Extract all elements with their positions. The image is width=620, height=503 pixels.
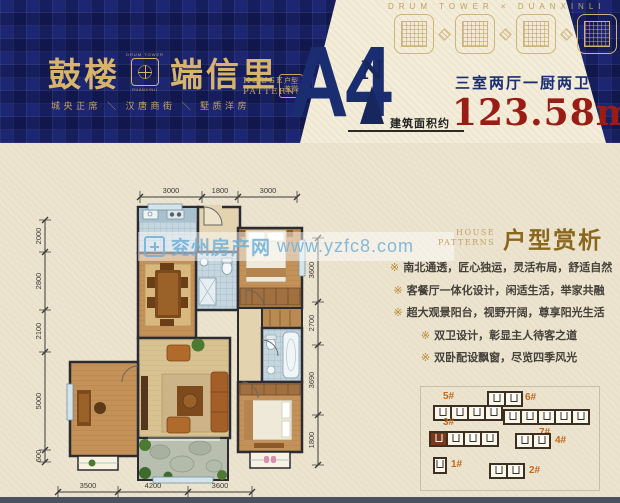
building-label: 6# [525,392,536,403]
compass-needle-icon [360,86,384,124]
watermark: 兖州房产网 www.yzfc8.com [138,232,454,261]
window-pattern-icon [455,14,495,54]
diamond-icon [499,28,512,41]
brand-logo-top-text: DRUM TOWER [126,52,164,57]
window-pattern-icon [577,14,617,54]
svg-text:2100: 2100 [34,323,43,340]
svg-text:1800: 1800 [212,186,229,195]
window-ornament-row [394,14,617,54]
window-pattern-icon [516,14,556,54]
room-living [138,338,230,438]
asterisk-marker-icon: ※ [421,330,430,342]
area-label: 建筑面积约 [390,115,450,131]
room-bedroom-master [238,382,302,452]
watermark-url: www.yzfc8.com [277,236,414,257]
svg-text:5000: 5000 [34,393,43,410]
asterisk-marker-icon: ※ [421,352,430,364]
north-compass-icon: N [352,58,392,124]
bullet-item: ※双卧配设飘窗，尽览四季风光 [390,349,608,365]
analysis-heading: HOUSE PATTERNS 户型赏析 [438,221,603,255]
building-7 [503,409,590,425]
building-1 [433,457,447,474]
analysis-bullets: ※南北通透，匠心独运，灵活布局，舒适自然 ※客餐厅一体化设计，闲适生活，举家共融… [390,259,608,372]
building-label: 4# [555,435,566,446]
brand-logo-icon: DRUM TOWER DUANXINLI [129,52,161,92]
window [153,477,213,483]
svg-text:3690: 3690 [307,372,316,389]
window [67,384,73,420]
building-3 [429,431,499,447]
brand-tagline: 城央正席 ＼ 汉唐商街 ＼ 墅质洋房 [51,99,250,112]
svg-text:3000: 3000 [260,186,277,195]
watermark-logo-icon [144,236,165,257]
brand-name-left: 鼓楼 [48,48,120,96]
hallway [238,308,262,382]
building-2 [489,463,525,479]
svg-text:3600: 3600 [212,481,229,490]
window-pattern-icon [394,14,434,54]
diamond-icon [438,28,451,41]
unit-cell [433,457,447,474]
bullet-item: ※双卫设计，彰显主人待客之道 [390,327,608,343]
ribbon-text: DRUM TOWER × DUANXINLI [388,2,606,11]
svg-text:1800: 1800 [307,432,316,449]
balcony [138,438,228,481]
diamond-icon [560,28,573,41]
bullet-item: ※南北通透，匠心独运，灵活布局，舒适自然 [390,259,608,275]
svg-text:3600: 3600 [307,262,316,279]
bullet-item: ※超大观景阳台，视野开阔，尊享阳光生活 [390,304,608,320]
building-label: 5# [443,391,454,402]
building-4 [515,433,551,449]
analysis-heading-cn: 户型赏析 [503,221,603,255]
watermark-site-name: 兖州房产网 [171,233,271,260]
room-study [70,362,138,456]
building-label: 1# [451,459,462,470]
unit-cell [571,409,590,425]
unit-cell [484,405,503,421]
floorplan-drawing: 3000 1800 3000 3500 4200 3600 2000 2800 … [28,180,398,502]
building-label: 2# [529,465,540,476]
svg-text:3500: 3500 [80,481,97,490]
room-bath-master [262,328,302,382]
analysis-heading-en: HOUSE PATTERNS [438,228,495,249]
bay-window-study [78,456,118,470]
window [148,204,182,210]
unit-cell [532,433,551,449]
svg-text:2700: 2700 [307,315,316,332]
building-6 [487,391,523,407]
area-value: 123.58m2 [452,92,620,134]
asterisk-marker-icon: ※ [393,285,402,297]
svg-text:2800: 2800 [34,273,43,290]
brand-logo-sub-text: DUANXINLI [132,87,158,92]
flyer-page: 鼓楼 DRUM TOWER DUANXINLI 端信里 城央正席 ＼ 汉唐商街 … [0,0,620,503]
header-banner: 鼓楼 DRUM TOWER DUANXINLI 端信里 城央正席 ＼ 汉唐商街 … [0,0,620,143]
unit-cell [504,391,523,407]
closet [262,308,302,328]
asterisk-marker-icon: ※ [390,262,399,274]
svg-text:2000: 2000 [34,228,43,245]
svg-text:4200: 4200 [145,481,162,490]
svg-text:3000: 3000 [163,186,180,195]
bullet-item: ※客餐厅一体化设计，闲适生活，举家共融 [390,282,608,298]
ornament-square-icon [131,58,159,86]
asterisk-marker-icon: ※ [393,307,402,319]
unit-cell [506,463,525,479]
building-label: 3# [443,417,454,428]
unit-cell [480,431,499,447]
svg-text:600: 600 [34,450,43,463]
rooms-description: 三室两厅一厨两卫 [455,72,591,93]
siteplan-panel: 5# 6# 7# 3# 4# 1# 2# [420,386,600,491]
room-dining [138,253,196,338]
bay-window-master [250,452,290,468]
